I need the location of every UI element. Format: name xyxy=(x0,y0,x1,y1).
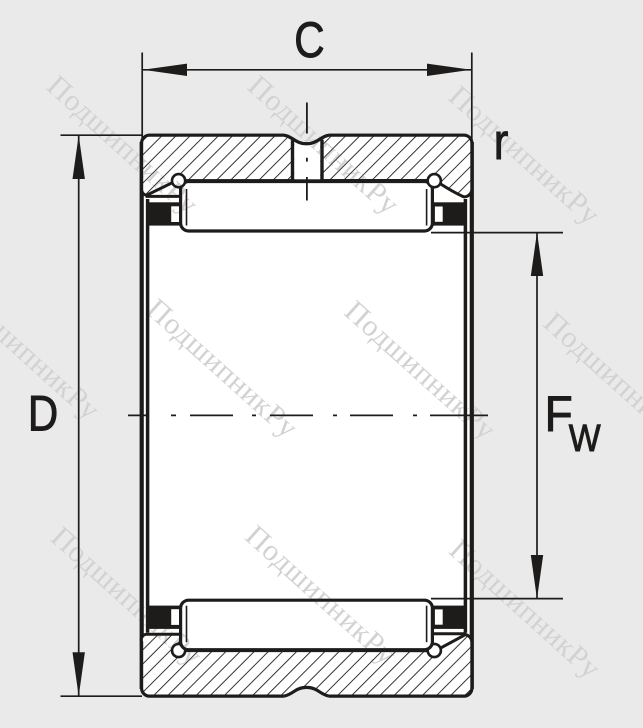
svg-text:W: W xyxy=(569,416,601,460)
svg-text:C: C xyxy=(294,12,324,68)
